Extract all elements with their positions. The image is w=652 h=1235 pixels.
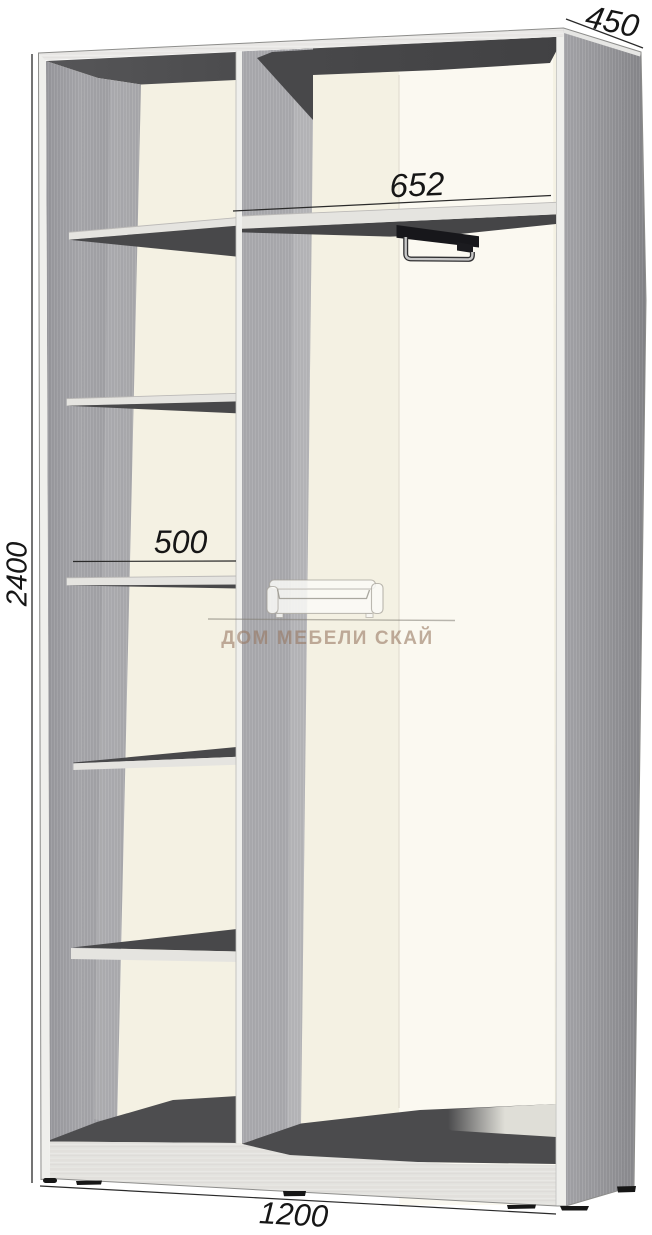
svg-text:2400: 2400 [2, 542, 34, 608]
svg-text:652: 652 [389, 165, 446, 204]
svg-text:ДОМ МЕБЕЛИ СКАЙ: ДОМ МЕБЕЛИ СКАЙ [221, 627, 433, 649]
svg-text:1200: 1200 [258, 1195, 329, 1230]
svg-text:500: 500 [154, 524, 208, 560]
